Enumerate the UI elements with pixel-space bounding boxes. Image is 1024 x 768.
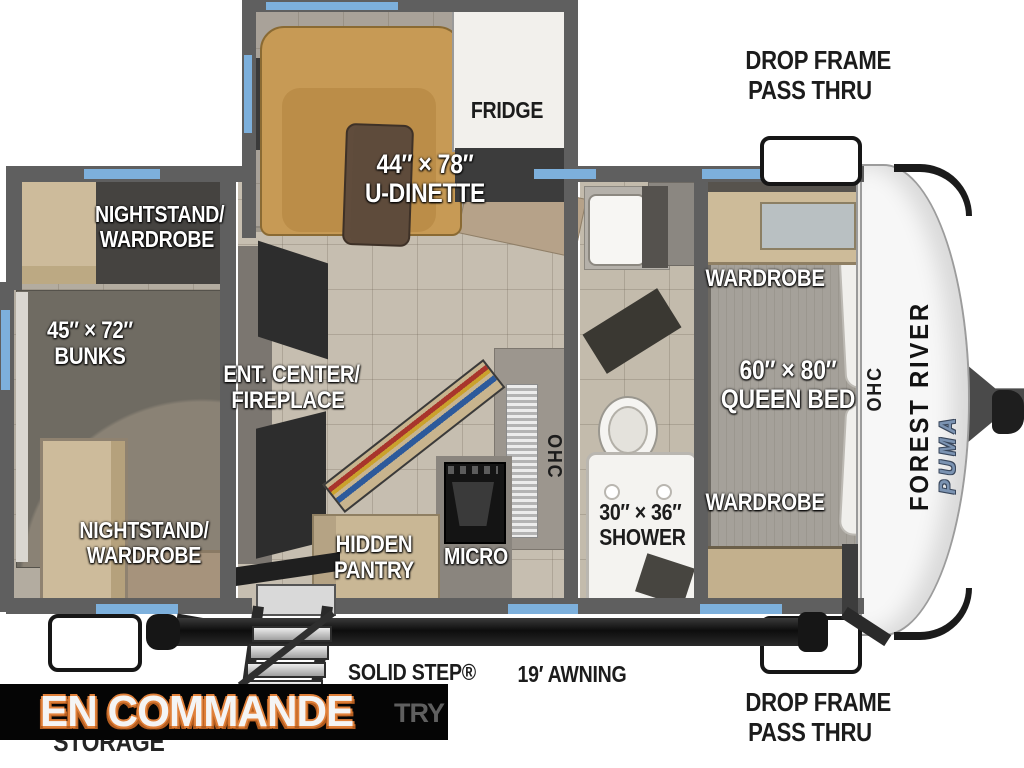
wardrobe-bottom-label: WARDROBE: [705, 490, 812, 516]
hidden-pantry-label: HIDDEN PANTRY: [325, 532, 424, 584]
window-bottom-kitchen: [508, 604, 578, 614]
ent-center-label: ENT. CENTER/ FIREPLACE: [223, 362, 352, 414]
front-ohc-label: OHC: [865, 353, 887, 425]
bath-vanity-dark-side: [642, 186, 668, 268]
bathroom-right-wall: [694, 180, 708, 604]
awning-label: 19′ AWNING: [513, 662, 632, 687]
window-slideout-top: [266, 2, 398, 10]
bunk-pillow: [16, 292, 28, 562]
bath-sink: [588, 194, 646, 266]
rear-nightstand-cabinet: [18, 182, 99, 284]
window-bottom-bedroom: [700, 604, 782, 614]
drop-frame-top-label: DROP FRAME PASS THRU: [745, 46, 874, 106]
fridge-label: FRIDGE: [463, 98, 551, 123]
shower-drain-right: [656, 484, 672, 500]
kitchen-ohc-label: OHC: [542, 425, 564, 488]
model-label: PUMA: [936, 342, 960, 566]
bunks-label: 45″ × 72″ BUNKS: [37, 318, 142, 370]
shower-label: 30″ × 36″ SHOWER: [599, 500, 681, 550]
stove-burner-row: [448, 466, 498, 474]
floorplan-screenshot: NIGHTSTAND/ WARDROBE 45″ × 72″ BUNKS NIG…: [0, 0, 1024, 768]
awning-end-fitting-right: [798, 612, 828, 652]
wardrobe-top-label: WARDROBE: [705, 266, 812, 292]
u-dinette-label: 44″ × 78″ U-DINETTE: [337, 150, 512, 208]
pass-thru-door-bottom-left: [48, 614, 142, 672]
window-top-rear: [84, 169, 160, 179]
window-bottom-rear: [96, 604, 178, 614]
window-slideout-left: [244, 55, 252, 133]
window-top-center: [534, 169, 596, 179]
solid-step-label: SOLID STEP®: [348, 660, 462, 685]
awning-bar: [148, 618, 816, 646]
window-rear-side: [1, 310, 10, 390]
order-status-banner-text: EN COMMANDE: [40, 688, 405, 738]
queen-bed-label: 60″ × 80″ QUEEN BED: [712, 356, 865, 414]
banner-remnant-text: TRY: [394, 698, 444, 729]
rear-upper-left-wall: [6, 166, 22, 290]
nightstand-top-label: NIGHTSTAND/ WARDROBE: [95, 202, 219, 252]
shower-drain-left: [604, 484, 620, 500]
hitch-coupler: [992, 390, 1024, 434]
front-cap-trim-bottom: [894, 588, 972, 640]
brand-label: FOREST RIVER: [905, 260, 933, 553]
front-cap-trim-top: [894, 164, 972, 216]
fridge-box: [452, 8, 566, 152]
toilet-seat-ring: [608, 406, 648, 454]
drop-frame-bottom-label: DROP FRAME PASS THRU: [745, 688, 874, 748]
bedroom-overhead-door-panel: [760, 202, 856, 250]
kitchen-bath-wall: [564, 0, 578, 612]
pass-thru-door-top: [760, 136, 862, 186]
awning-end-cap-left: [146, 614, 180, 650]
nightstand-bottom-label: NIGHTSTAND/ WARDROBE: [69, 518, 219, 568]
micro-label: MICRO: [444, 544, 509, 569]
